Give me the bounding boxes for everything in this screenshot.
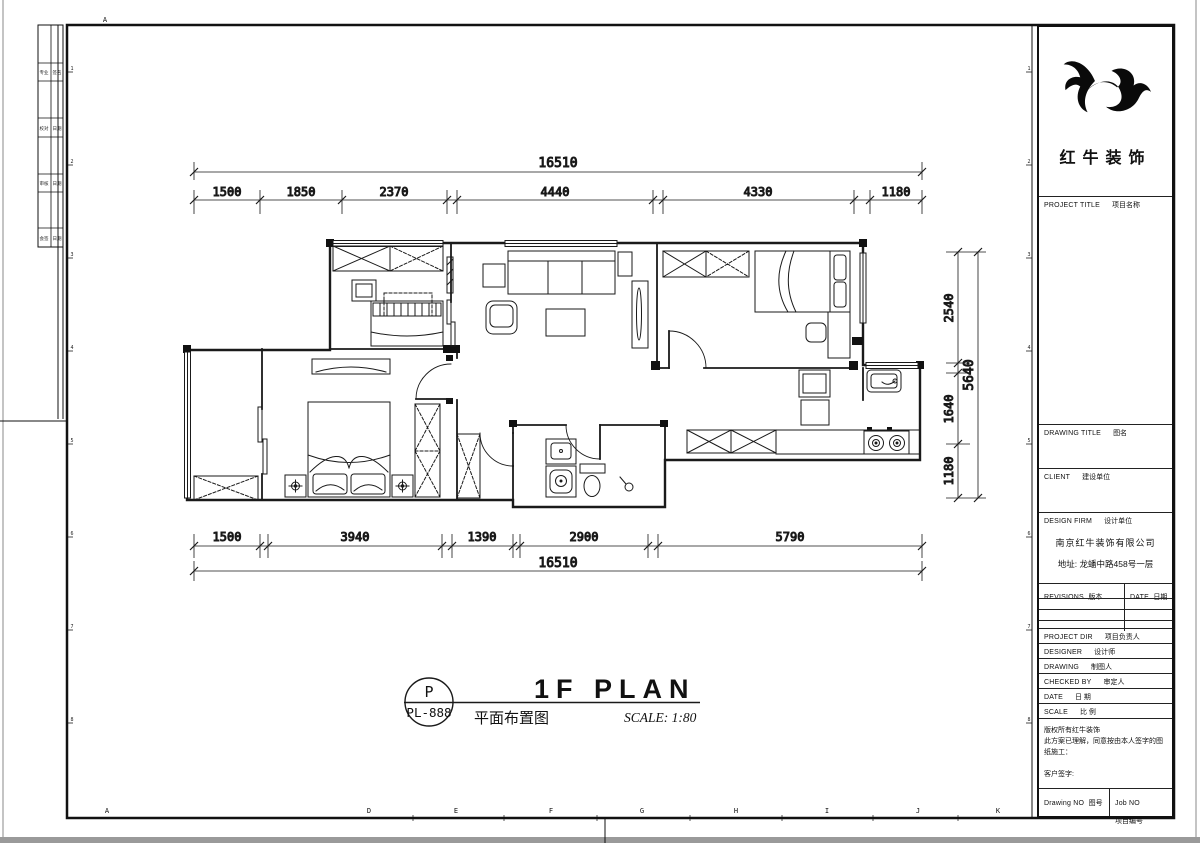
sheet-frame <box>0 0 1200 843</box>
bed <box>755 251 850 312</box>
floor-plan <box>183 239 924 507</box>
desk <box>828 312 850 358</box>
grid-letter: A <box>103 16 108 24</box>
svg-text:1640: 1640 <box>942 395 956 424</box>
end-table <box>483 264 505 287</box>
rednull-logo-icon <box>1060 53 1152 131</box>
svg-text:3: 3 <box>1027 252 1030 258</box>
field-label-cn: 项目名称 <box>1112 200 1140 210</box>
bed <box>308 402 390 497</box>
copyright-statement: 版权所有红牛装饰 此方案已理解，同意按由本人签字的图纸施工： 客户签字: <box>1039 718 1172 788</box>
strip-label: 会签 <box>40 235 49 242</box>
svg-text:4: 4 <box>1027 345 1030 351</box>
firm-name: 南京红牛装饰有限公司 <box>1039 536 1172 549</box>
svg-text:2: 2 <box>70 159 73 165</box>
svg-text:1180: 1180 <box>882 185 911 199</box>
pillow <box>313 474 347 494</box>
svg-text:4330: 4330 <box>744 185 773 199</box>
grid-letter: F <box>549 807 553 815</box>
drawing-canvas: 专业 签名 校对 日期 审核 日期 会签 日期 A A D E F G H I … <box>0 0 1200 843</box>
field-revisions: REVISIONS 版本 DATE 日期 <box>1039 583 1172 628</box>
strip-label: 审核 <box>40 180 49 187</box>
grid-letter: H <box>734 807 738 815</box>
svg-text:8: 8 <box>70 717 73 723</box>
field-numbers: Drawing NO 图号 Job NO 项目编号 <box>1039 788 1172 816</box>
revision-row <box>1039 598 1172 609</box>
grid-letter: K <box>996 807 1001 815</box>
tv <box>637 288 642 340</box>
dim-bottom: 1500 3940 1390 2900 5790 16510 <box>190 530 926 581</box>
field-design-firm: DESIGN FIRM 设计单位 南京红牛装饰有限公司 地址: 龙蟠中路458号… <box>1039 512 1172 583</box>
strip-label: 校对 <box>40 125 49 132</box>
corridor-kitchen-furniture <box>687 370 920 454</box>
svg-text:1390: 1390 <box>468 530 497 544</box>
field-project-dir: PROJECT DIR 项目负责人 <box>1039 628 1172 643</box>
strip-label: 日期 <box>53 126 62 132</box>
strip-label: 日期 <box>53 181 62 187</box>
pillow <box>834 255 846 280</box>
bedroom1-door-arc <box>669 331 706 368</box>
cabinet <box>801 400 829 425</box>
svg-text:2: 2 <box>1027 159 1030 165</box>
dim-total-bottom: 16510 <box>538 556 577 571</box>
stamp-letter: P <box>424 683 433 701</box>
field-client: CLIENT 建设单位 <box>1039 468 1172 512</box>
stamp-code: PL-888 <box>406 705 451 720</box>
grid-letter: D <box>367 807 371 815</box>
statement-line: 此方案已理解，同意按由本人签字的图纸施工： <box>1044 736 1167 758</box>
svg-text:2540: 2540 <box>942 294 956 323</box>
grid-letter: J <box>916 807 920 815</box>
pillow <box>351 474 385 494</box>
dim-right: 2540 1640 1180 5640 <box>942 248 986 502</box>
strip-label: 签名 <box>53 69 62 76</box>
bathroom-furniture <box>457 434 633 498</box>
grid-letter: I <box>825 807 829 815</box>
svg-text:4: 4 <box>70 345 73 351</box>
svg-text:5790: 5790 <box>776 530 805 544</box>
dim-total-top: 16510 <box>538 156 577 171</box>
cad-sheet: 专业 签名 校对 日期 审核 日期 会签 日期 A A D E F G H I … <box>0 0 1200 843</box>
svg-text:3: 3 <box>70 252 73 258</box>
svg-text:5: 5 <box>1027 438 1030 444</box>
svg-text:2900: 2900 <box>570 530 599 544</box>
bedroom1-furniture <box>663 251 850 358</box>
strip-label: 专业 <box>40 69 49 76</box>
field-drawing-by: DRAWING 制图人 <box>1039 658 1172 673</box>
field-project-title: PROJECT TITLE 项目名称 <box>1039 196 1172 424</box>
svg-text:1: 1 <box>70 66 73 72</box>
revision-row <box>1039 609 1172 620</box>
binding-strip <box>38 25 63 247</box>
toilet-tank <box>580 464 605 473</box>
grid-letter: E <box>454 807 458 815</box>
living-furniture <box>483 251 648 348</box>
pillow <box>834 282 846 307</box>
master-furniture <box>285 359 440 497</box>
master-door-arc <box>416 364 451 399</box>
svg-text:1180: 1180 <box>942 457 956 486</box>
firm-address: 地址: 龙蟠中路458号一层 <box>1039 558 1172 570</box>
svg-text:3940: 3940 <box>341 530 370 544</box>
exterior-walls <box>187 243 920 507</box>
client-signature-label: 客户签字: <box>1044 769 1167 780</box>
coffee-table <box>546 309 585 336</box>
statement-line: 版权所有红牛装饰 <box>1044 725 1167 736</box>
drawing-title-en: 1F PLAN <box>534 674 696 704</box>
svg-text:8: 8 <box>1027 717 1030 723</box>
toilet-bowl <box>584 476 600 497</box>
title-stamp: P PL-888 1F PLAN 平面布置图 SCALE: 1:80 <box>404 674 700 727</box>
dim-top: 16510 1500 1850 2370 4440 4330 1180 <box>190 156 926 214</box>
grid-letter: G <box>640 807 644 815</box>
chair <box>806 323 826 342</box>
drawing-scale: SCALE: 1:80 <box>624 710 697 725</box>
strip-label: 日期 <box>53 236 62 242</box>
svg-text:6: 6 <box>70 531 73 537</box>
stove <box>864 431 909 454</box>
bath-outer-door-arc <box>480 433 513 466</box>
field-designer: DESIGNER 设计师 <box>1039 643 1172 658</box>
side-table <box>618 252 632 276</box>
field-date: DATE 日 期 <box>1039 688 1172 703</box>
svg-text:2370: 2370 <box>380 185 409 199</box>
dim-total-right: 5640 <box>962 359 977 390</box>
svg-text:1850: 1850 <box>287 185 316 199</box>
field-drawing-title: DRAWING TITLE 图名 <box>1039 424 1172 468</box>
bedroom2-furniture <box>333 246 443 346</box>
field-checked-by: CHECKED BY 审定人 <box>1039 673 1172 688</box>
sink <box>867 370 901 392</box>
svg-text:1500: 1500 <box>213 185 242 199</box>
svg-text:6: 6 <box>1027 531 1030 537</box>
wall-jambs <box>183 239 924 431</box>
svg-text:7: 7 <box>70 624 73 630</box>
title-block: 红牛装饰 PROJECT TITLE 项目名称 DRAWING TITLE 图名… <box>1037 25 1174 818</box>
svg-text:7: 7 <box>1027 624 1030 630</box>
field-label-en: PROJECT TITLE <box>1044 202 1100 209</box>
company-header: 红牛装饰 <box>1039 27 1172 196</box>
drawing-title-cn: 平面布置图 <box>474 710 549 727</box>
svg-text:1500: 1500 <box>213 530 242 544</box>
field-scale: SCALE 比 例 <box>1039 703 1172 718</box>
sofa <box>508 251 615 294</box>
armchair <box>486 301 517 334</box>
company-name: 红牛装饰 <box>1039 144 1172 168</box>
wardrobe <box>333 246 443 271</box>
grid-letter: A <box>105 807 110 815</box>
svg-text:1: 1 <box>1027 66 1030 72</box>
svg-text:4440: 4440 <box>541 185 570 199</box>
svg-text:5: 5 <box>70 438 73 444</box>
balcony-furniture <box>194 476 258 500</box>
